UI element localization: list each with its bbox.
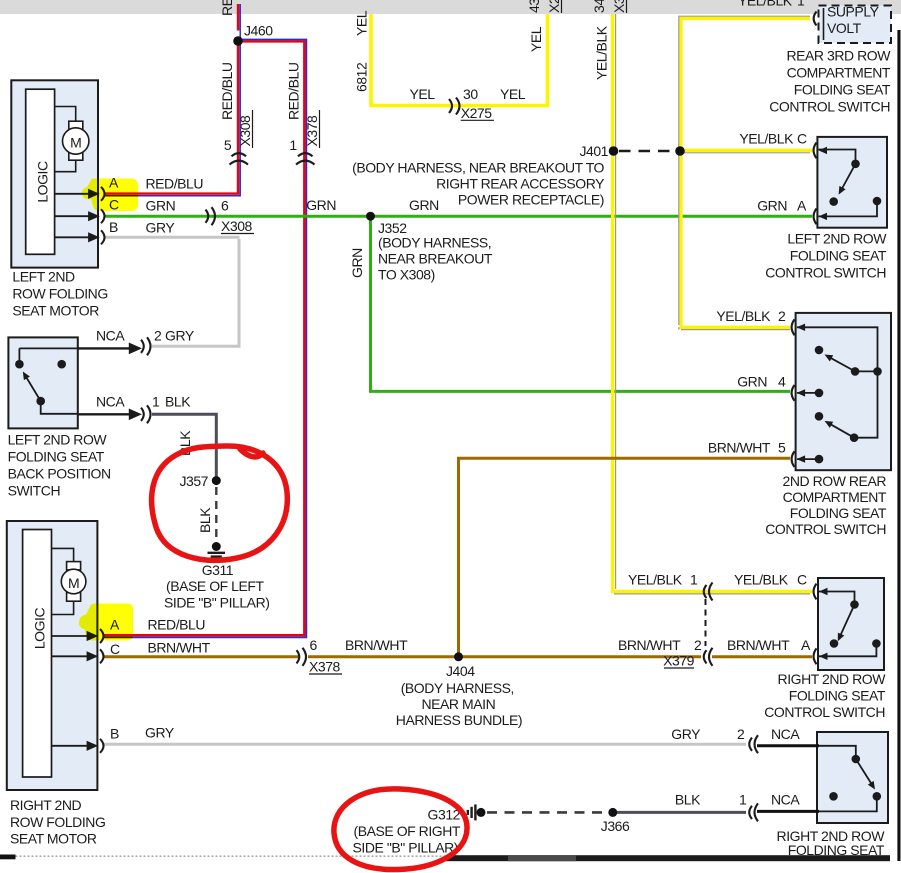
svg-text:COMPARTMENT: COMPARTMENT bbox=[787, 65, 891, 81]
svg-text:LEFT 2ND ROW: LEFT 2ND ROW bbox=[8, 432, 108, 448]
svg-text:GRN: GRN bbox=[306, 197, 336, 213]
svg-text:A: A bbox=[801, 637, 811, 653]
svg-text:BRN/WHT: BRN/WHT bbox=[345, 637, 408, 653]
svg-text:LOGIC: LOGIC bbox=[32, 608, 48, 650]
svg-text:M: M bbox=[70, 135, 81, 151]
svg-text:C: C bbox=[797, 572, 807, 588]
svg-text:FOLDING SEAT: FOLDING SEAT bbox=[789, 688, 886, 704]
svg-text:2: 2 bbox=[154, 328, 162, 344]
svg-text:B: B bbox=[109, 219, 118, 235]
svg-text:FOLDING SEAT: FOLDING SEAT bbox=[790, 505, 887, 521]
svg-text:BRN/WHT: BRN/WHT bbox=[148, 640, 211, 656]
svg-text:NEAR BREAKOUT: NEAR BREAKOUT bbox=[378, 251, 493, 267]
svg-text:2: 2 bbox=[694, 637, 702, 653]
svg-text:J404: J404 bbox=[446, 663, 475, 679]
svg-text:VOLT: VOLT bbox=[827, 20, 862, 36]
svg-text:GRN: GRN bbox=[146, 197, 176, 213]
svg-text:REAR 3RD ROW: REAR 3RD ROW bbox=[787, 48, 892, 64]
svg-text:5: 5 bbox=[224, 137, 232, 153]
svg-text:YEL: YEL bbox=[354, 10, 370, 36]
svg-text:YEL: YEL bbox=[528, 26, 544, 52]
svg-text:TO X308): TO X308) bbox=[378, 267, 435, 283]
svg-text:COMPARTMENT: COMPARTMENT bbox=[783, 489, 887, 505]
svg-text:RIGHT 2ND: RIGHT 2ND bbox=[10, 797, 81, 813]
svg-text:BRN/WHT: BRN/WHT bbox=[618, 637, 681, 653]
svg-text:NEAR MAIN: NEAR MAIN bbox=[422, 696, 496, 712]
svg-text:CONTROL SWITCH: CONTROL SWITCH bbox=[764, 704, 885, 720]
svg-text:CONTROL SWITCH: CONTROL SWITCH bbox=[765, 521, 886, 537]
svg-text:C: C bbox=[110, 641, 120, 657]
svg-text:ROW FOLDING: ROW FOLDING bbox=[10, 814, 105, 830]
svg-text:6812: 6812 bbox=[354, 62, 370, 92]
svg-text:6: 6 bbox=[221, 198, 229, 214]
svg-text:HARNESS BUNDLE): HARNESS BUNDLE) bbox=[396, 712, 522, 728]
svg-text:RED/BLU: RED/BLU bbox=[286, 62, 302, 120]
svg-text:(BODY HARNESS, NEAR BREAKOUT T: (BODY HARNESS, NEAR BREAKOUT TO bbox=[352, 160, 604, 176]
svg-text:GRY: GRY bbox=[671, 726, 701, 742]
svg-text:NCA: NCA bbox=[96, 328, 125, 344]
svg-text:B: B bbox=[110, 726, 119, 742]
svg-text:SIDE "B" PILLAR): SIDE "B" PILLAR) bbox=[164, 595, 269, 611]
svg-text:LOGIC: LOGIC bbox=[35, 161, 51, 203]
svg-text:YEL: YEL bbox=[500, 86, 526, 102]
svg-text:1: 1 bbox=[739, 792, 747, 808]
svg-text:RED/BLU: RED/BLU bbox=[219, 62, 235, 120]
svg-text:FOLDING SEAT: FOLDING SEAT bbox=[794, 82, 891, 98]
svg-text:1: 1 bbox=[289, 137, 297, 153]
svg-text:POWER RECEPTACLE): POWER RECEPTACLE) bbox=[458, 192, 604, 208]
svg-text:X378: X378 bbox=[304, 115, 320, 147]
svg-text:X378: X378 bbox=[309, 659, 341, 675]
svg-text:YEL/BLK: YEL/BLK bbox=[594, 25, 610, 80]
svg-text:G311: G311 bbox=[202, 562, 234, 578]
svg-text:GRN: GRN bbox=[757, 197, 787, 213]
svg-text:X275: X275 bbox=[461, 105, 493, 121]
svg-text:A: A bbox=[797, 197, 807, 213]
svg-text:GRY: GRY bbox=[145, 725, 175, 741]
svg-text:1: 1 bbox=[797, 0, 805, 9]
svg-text:SEAT MOTOR: SEAT MOTOR bbox=[10, 831, 97, 847]
svg-text:BLK: BLK bbox=[165, 394, 191, 410]
svg-text:NCA: NCA bbox=[771, 792, 800, 808]
svg-text:(BASE OF RIGHT: (BASE OF RIGHT bbox=[354, 823, 461, 839]
svg-text:M: M bbox=[68, 575, 79, 591]
svg-text:J460: J460 bbox=[244, 23, 273, 39]
svg-text:2: 2 bbox=[737, 726, 745, 742]
svg-text:YEL/BLK: YEL/BLK bbox=[716, 308, 771, 324]
svg-text:YEL: YEL bbox=[410, 86, 436, 102]
svg-text:X308: X308 bbox=[221, 218, 253, 234]
svg-text:1: 1 bbox=[152, 394, 160, 410]
svg-text:J357: J357 bbox=[179, 473, 208, 489]
svg-text:BLK: BLK bbox=[197, 507, 213, 533]
svg-text:GRN: GRN bbox=[409, 197, 439, 213]
svg-text:YEL/BLK: YEL/BLK bbox=[628, 572, 683, 588]
svg-text:(BASE OF LEFT: (BASE OF LEFT bbox=[166, 578, 265, 594]
svg-text:(BODY HARNESS,: (BODY HARNESS, bbox=[378, 235, 491, 251]
svg-text:1: 1 bbox=[690, 572, 698, 588]
svg-text:RED/BLU: RED/BLU bbox=[148, 617, 206, 633]
svg-text:J401: J401 bbox=[579, 143, 608, 159]
svg-text:ROW FOLDING: ROW FOLDING bbox=[12, 286, 107, 302]
svg-text:2ND ROW REAR: 2ND ROW REAR bbox=[783, 473, 887, 489]
svg-text:LEFT 2ND ROW: LEFT 2ND ROW bbox=[787, 231, 887, 247]
svg-text:GRY: GRY bbox=[146, 219, 176, 235]
svg-text:5: 5 bbox=[778, 440, 786, 456]
svg-text:SIDE "B" PILLAR): SIDE "B" PILLAR) bbox=[353, 840, 458, 856]
svg-text:BRN/WHT: BRN/WHT bbox=[727, 637, 790, 653]
svg-text:NCA: NCA bbox=[96, 394, 125, 410]
svg-text:34: 34 bbox=[591, 0, 607, 13]
svg-text:X379: X379 bbox=[611, 0, 627, 13]
svg-text:LEFT 2ND: LEFT 2ND bbox=[12, 269, 75, 285]
svg-text:43: 43 bbox=[526, 0, 542, 13]
svg-text:BACK POSITION: BACK POSITION bbox=[8, 466, 111, 482]
svg-text:X275: X275 bbox=[546, 0, 562, 13]
svg-text:GRY: GRY bbox=[165, 328, 195, 344]
svg-text:SWITCH: SWITCH bbox=[8, 483, 61, 499]
svg-text:SUPPLY: SUPPLY bbox=[827, 4, 880, 20]
svg-text:YEL/BLK: YEL/BLK bbox=[734, 572, 789, 588]
svg-text:GRN: GRN bbox=[737, 374, 767, 390]
svg-text:X379: X379 bbox=[663, 653, 695, 669]
svg-text:YEL/BLK: YEL/BLK bbox=[739, 131, 794, 147]
svg-text:RED/BLU: RED/BLU bbox=[146, 175, 204, 191]
svg-text:C: C bbox=[797, 131, 807, 147]
svg-text:30: 30 bbox=[463, 86, 478, 102]
svg-text:CONTROL SWITCH: CONTROL SWITCH bbox=[769, 99, 890, 115]
svg-text:RED/B: RED/B bbox=[219, 0, 235, 16]
svg-text:RIGHT REAR ACCESSORY: RIGHT REAR ACCESSORY bbox=[436, 176, 605, 192]
svg-text:X308: X308 bbox=[237, 115, 253, 147]
svg-text:6: 6 bbox=[310, 637, 318, 653]
svg-text:J366: J366 bbox=[601, 818, 630, 834]
svg-text:YEL/BLK: YEL/BLK bbox=[738, 0, 793, 9]
svg-text:CONTROL SWITCH: CONTROL SWITCH bbox=[765, 265, 886, 281]
svg-text:BLK: BLK bbox=[675, 792, 701, 808]
svg-text:FOLDING SEAT: FOLDING SEAT bbox=[8, 449, 105, 465]
svg-text:GRN: GRN bbox=[349, 248, 365, 278]
svg-text:NCA: NCA bbox=[771, 726, 800, 742]
svg-text:(BODY HARNESS,: (BODY HARNESS, bbox=[401, 680, 514, 696]
svg-text:BRN/WHT: BRN/WHT bbox=[708, 440, 771, 456]
svg-text:4: 4 bbox=[778, 374, 786, 390]
svg-text:SEAT MOTOR: SEAT MOTOR bbox=[12, 303, 99, 319]
svg-text:RIGHT 2ND ROW: RIGHT 2ND ROW bbox=[778, 671, 887, 687]
svg-text:2: 2 bbox=[778, 308, 786, 324]
svg-text:FOLDING SEAT: FOLDING SEAT bbox=[790, 248, 887, 264]
